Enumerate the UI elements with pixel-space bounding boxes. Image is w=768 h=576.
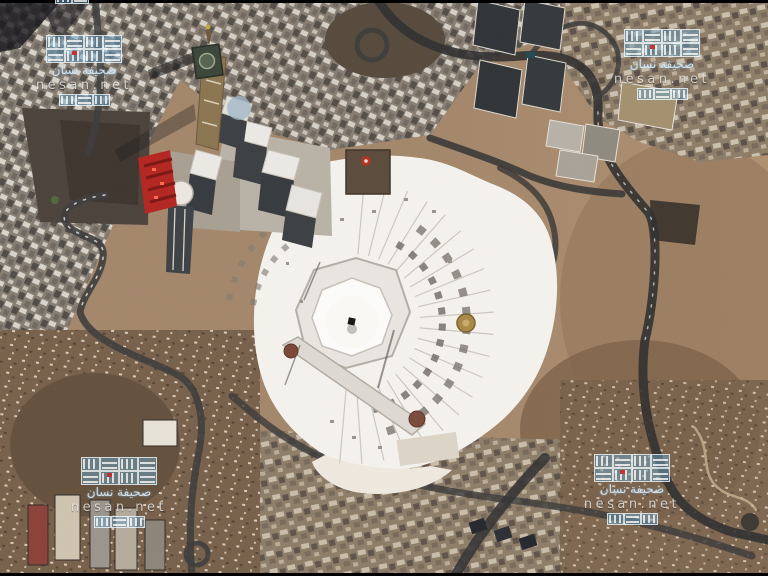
- satellite-image-mecca: صحيفة نسان nesan.net صحيفة نسان nesan.ne…: [0, 0, 768, 576]
- letterbox-top: [0, 0, 768, 3]
- photo-grain: [0, 0, 768, 576]
- satellite-map: [0, 0, 768, 576]
